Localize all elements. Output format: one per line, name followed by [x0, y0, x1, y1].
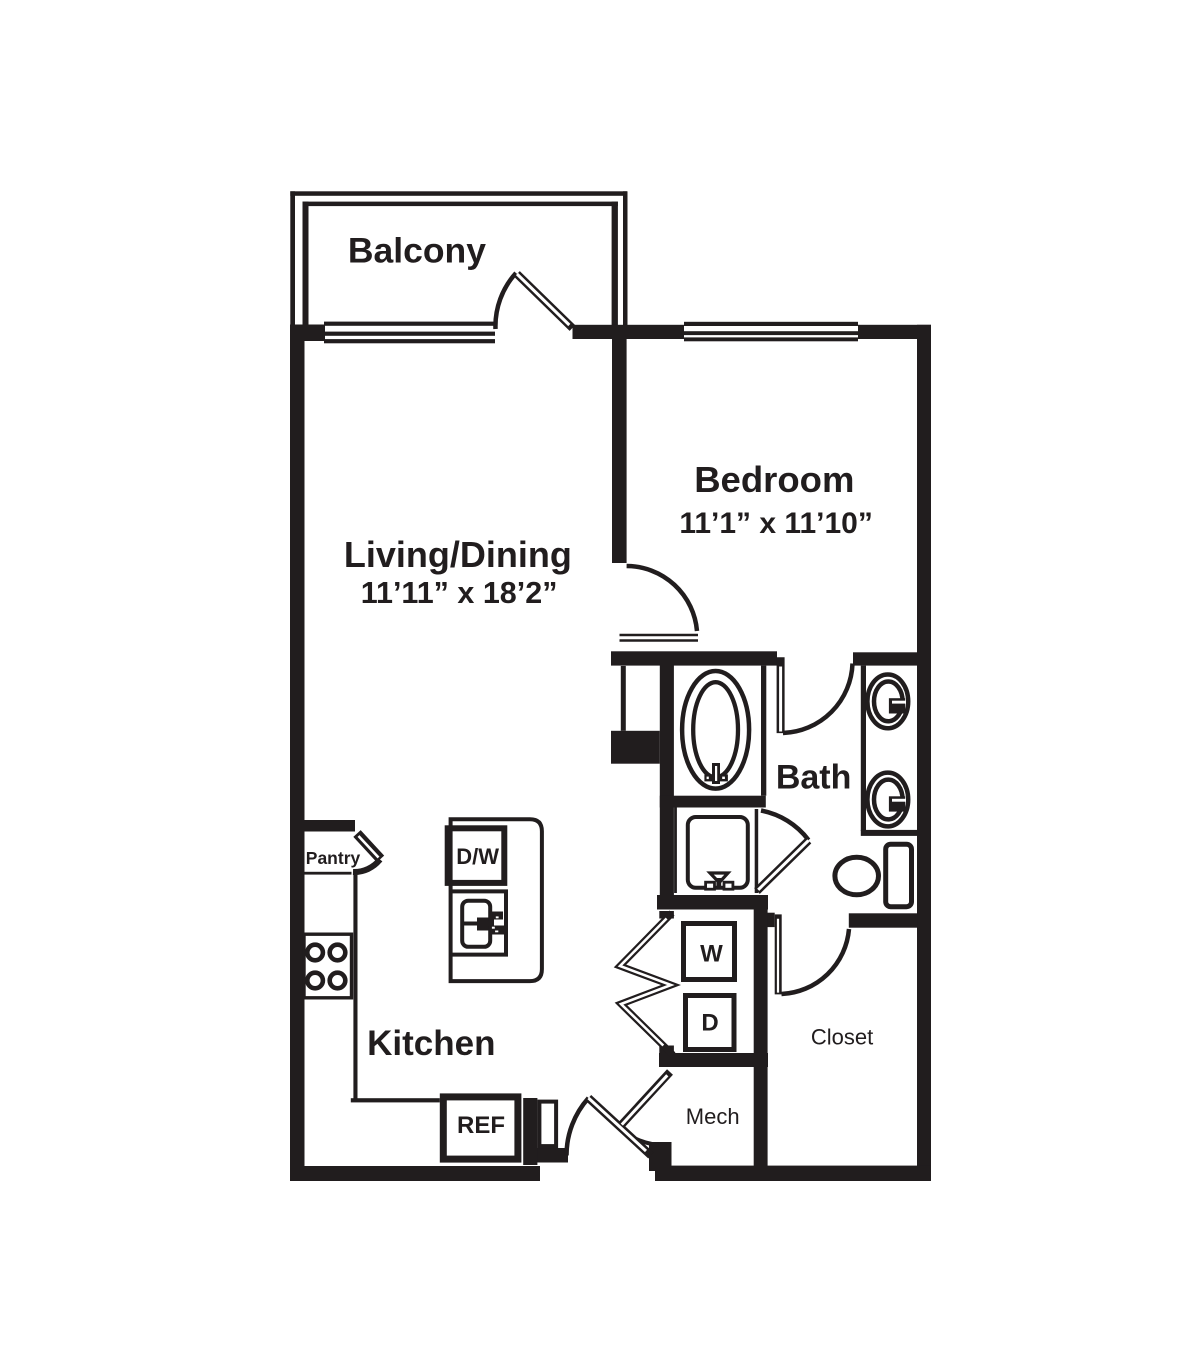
svg-text:D: D [701, 1010, 718, 1037]
svg-text:REF: REF [457, 1112, 505, 1139]
svg-text:Mech: Mech [686, 1104, 740, 1129]
svg-text:Bedroom: Bedroom [694, 459, 854, 500]
svg-text:Bath: Bath [776, 759, 852, 797]
svg-text:11’11” x 18’2”: 11’11” x 18’2” [361, 576, 558, 610]
svg-text:Closet: Closet [811, 1024, 873, 1049]
svg-text:Balcony: Balcony [348, 231, 486, 271]
svg-text:D/W: D/W [456, 844, 499, 869]
svg-text:Living/Dining: Living/Dining [344, 534, 572, 575]
svg-text:11’1” x 11’10”: 11’1” x 11’10” [679, 507, 873, 540]
svg-text:Pantry: Pantry [306, 848, 361, 868]
svg-text:Kitchen: Kitchen [367, 1024, 495, 1063]
svg-text:W: W [700, 941, 723, 968]
